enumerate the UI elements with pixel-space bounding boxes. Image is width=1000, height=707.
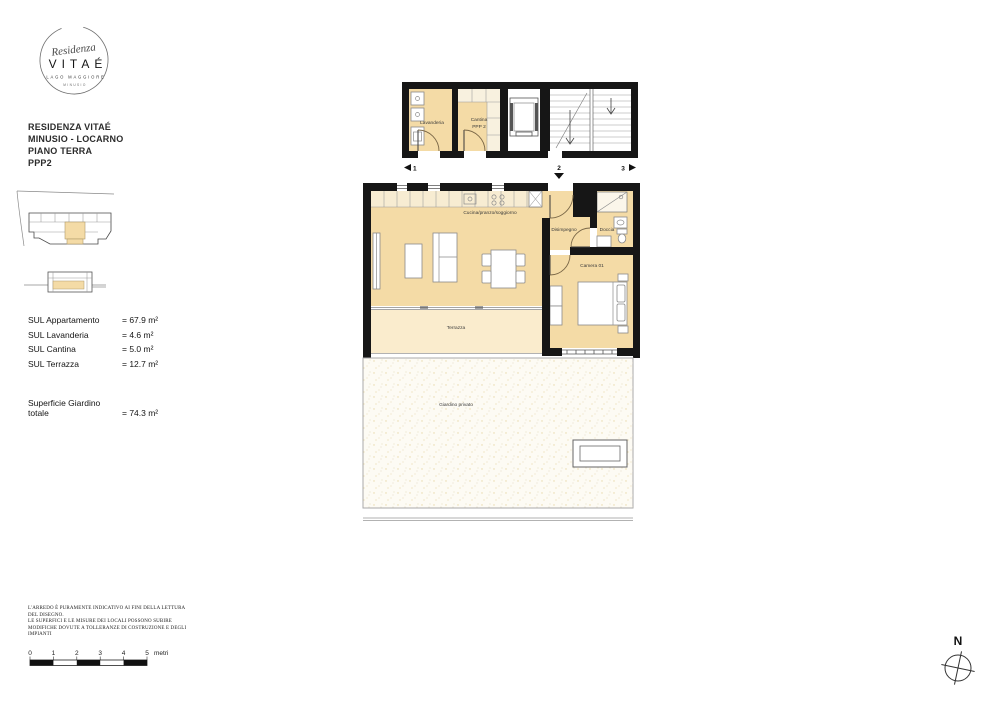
room-label: Cucina/pranzo/soggiorno — [463, 210, 517, 216]
scale-bar: 0 1 2 3 4 5 metri — [26, 646, 201, 672]
dining-table — [491, 250, 516, 288]
room-label: Terrazza — [447, 325, 466, 331]
room-label: Cantina — [471, 117, 488, 123]
project-floor: PIANO TERRA — [28, 145, 123, 157]
floor-plan-drawing: Lavanderia Cantina PPP 2 1 2 3 — [360, 70, 650, 530]
marker-number: 1 — [413, 166, 417, 173]
scale-unit-label: metri — [154, 650, 168, 657]
table-row: totale = 74.3 m² — [28, 408, 198, 423]
wardrobe — [550, 306, 562, 325]
scale-tick-label: 1 — [52, 650, 56, 657]
sofa — [433, 233, 457, 282]
wall — [407, 183, 428, 191]
wall — [562, 151, 638, 158]
wall — [402, 82, 409, 158]
cantina-shelf-top — [458, 89, 500, 102]
garden-area-label: Superficie Giardino — [28, 398, 198, 408]
pillow-icon — [617, 285, 625, 302]
room-label: PPP 2 — [472, 124, 486, 130]
compass-cross-icon — [938, 648, 978, 688]
marker-arrow-down-icon — [554, 173, 564, 179]
wall — [590, 191, 597, 228]
north-compass: N — [933, 630, 983, 690]
wall — [540, 89, 550, 151]
sliding-door-handle — [420, 306, 428, 308]
key-plan — [10, 186, 120, 301]
area-table: SUL Appartamento = 67.9 m² SUL Lavanderi… — [28, 315, 198, 423]
area-label: SUL Appartamento — [28, 315, 122, 325]
wall — [402, 151, 418, 158]
cantina-shelf-right — [487, 102, 500, 151]
sliding-door — [371, 308, 542, 310]
table-row: SUL Appartamento = 67.9 m² — [28, 315, 198, 330]
kitchen-counter — [371, 191, 542, 207]
marker-number: 3 — [621, 166, 625, 173]
wall — [486, 151, 548, 158]
scale-ticks — [30, 657, 147, 661]
table-row: SUL Cantina = 5.0 m² — [28, 344, 198, 359]
disclaimer-line: DEL DISEGNO. — [28, 613, 186, 620]
garden-area-label2: totale — [28, 408, 122, 418]
elevator-rail-left — [510, 103, 513, 131]
nightstand — [618, 274, 628, 281]
washer-icon — [411, 92, 424, 105]
dining-chair — [516, 254, 525, 266]
north-label: N — [954, 634, 963, 648]
marker-number: 2 — [557, 165, 561, 172]
wall — [631, 82, 638, 158]
garden-area-value: = 74.3 m² — [122, 408, 158, 418]
pillow-icon — [617, 304, 625, 321]
wall — [590, 183, 640, 191]
wall — [570, 247, 640, 255]
scale-tick-label: 3 — [98, 650, 102, 657]
toilet-cistern-icon — [617, 229, 627, 234]
garden: Giardino privato — [363, 358, 633, 521]
wall — [440, 183, 492, 191]
disclaimer-line: IMPIANTI — [28, 632, 186, 639]
project-info: RESIDENZA VITAÉ MINUSIO - LOCARNO PIANO … — [28, 121, 123, 169]
disclaimer: L'ARREDO È PURAMENTE INDICATIVO AI FINI … — [28, 606, 186, 639]
project-unit: PPP2 — [28, 157, 123, 169]
wall — [500, 89, 508, 151]
table-row: SUL Terrazza = 12.7 m² — [28, 359, 198, 374]
wall — [573, 183, 590, 217]
wall — [504, 183, 548, 191]
bathroom-sink-icon — [614, 217, 627, 228]
room-label: Lavanderia — [420, 120, 444, 126]
table-row: SUL Lavanderia = 4.6 m² — [28, 330, 198, 345]
area-value: = 4.6 m² — [122, 330, 153, 340]
marker-arrow-left-icon — [404, 164, 411, 171]
area-label: SUL Cantina — [28, 344, 122, 354]
project-title: RESIDENZA VITAÉ — [28, 121, 123, 133]
logo-brand: VITAÉ — [49, 56, 108, 71]
key-plan-unit-garden-stub — [67, 239, 83, 244]
wall — [452, 89, 458, 151]
scale-tick-label: 5 — [145, 650, 149, 657]
wall — [440, 151, 464, 158]
area-value: = 67.9 m² — [122, 315, 158, 325]
key-plan-highlighted-unit — [65, 222, 85, 239]
dryer-icon — [411, 108, 424, 121]
brand-logo: Residenza VITAÉ LAGO MAGGIORE MINUSIO — [22, 10, 132, 110]
logo-subtitle: LAGO MAGGIORE — [46, 75, 105, 80]
window — [562, 350, 617, 354]
area-label: SUL Lavanderia — [28, 330, 122, 340]
wall — [633, 183, 640, 358]
disclaimer-line: LE SUPERFICI E LE MISURE DEI LOCALI POSS… — [28, 619, 186, 626]
coffee-table — [405, 244, 422, 278]
nightstand — [618, 326, 628, 333]
disclaimer-line: MODIFICHE DOVUTE A TOLLERANZE DI COSTRUZ… — [28, 626, 186, 633]
scale-bar-segment — [30, 660, 53, 666]
floor-plan-sheet: Residenza VITAÉ LAGO MAGGIORE MINUSIO RE… — [0, 0, 1000, 707]
apartment-block: Cucina/pranzo/soggiorno Disimpegno Docci… — [363, 183, 640, 358]
area-value: = 5.0 m² — [122, 344, 153, 354]
garden-boundary-line — [363, 518, 633, 521]
garden-texture — [363, 358, 633, 508]
scale-tick-label: 0 — [28, 650, 32, 657]
wardrobe — [550, 286, 562, 306]
living-passage — [542, 191, 548, 218]
wall — [363, 183, 371, 358]
dining-chair — [516, 271, 525, 283]
service-block: Lavanderia Cantina PPP 2 — [402, 82, 638, 158]
elevator-rail-right — [535, 103, 538, 131]
toilet-bowl-icon — [618, 234, 626, 243]
scale-tick-label: 4 — [122, 650, 126, 657]
project-city: MINUSIO - LOCARNO — [28, 133, 123, 145]
bath-cabinet-icon — [597, 236, 611, 247]
terrace — [371, 310, 542, 353]
site-boundary-line — [17, 191, 24, 246]
scale-bar-segment — [77, 660, 100, 666]
section-markers: 1 2 3 — [404, 164, 636, 179]
logo-location: MINUSIO — [63, 83, 86, 87]
site-top-line — [17, 191, 114, 194]
garden-equipment-box — [573, 440, 627, 467]
wall — [617, 348, 640, 356]
wall — [402, 82, 638, 89]
room-label: Doccia — [600, 227, 615, 233]
scale-bar-segment — [124, 660, 147, 666]
stairwell — [550, 89, 631, 151]
dining-chair — [482, 271, 491, 283]
wall — [548, 348, 562, 356]
dining-chair — [482, 254, 491, 266]
area-label: SUL Terrazza — [28, 359, 122, 369]
section-highlighted-level — [53, 281, 84, 289]
area-value: = 12.7 m² — [122, 359, 158, 369]
sliding-door-handle — [475, 306, 483, 308]
scale-tick-label: 2 — [75, 650, 79, 657]
disclaimer-line: L'ARREDO È PURAMENTE INDICATIVO AI FINI … — [28, 606, 186, 613]
room-label: Giardino privato — [439, 402, 473, 408]
wall — [542, 218, 550, 356]
marker-arrow-right-icon — [629, 164, 636, 171]
room-label: Disimpegno — [551, 227, 577, 233]
room-label: Camera 01 — [580, 263, 604, 269]
